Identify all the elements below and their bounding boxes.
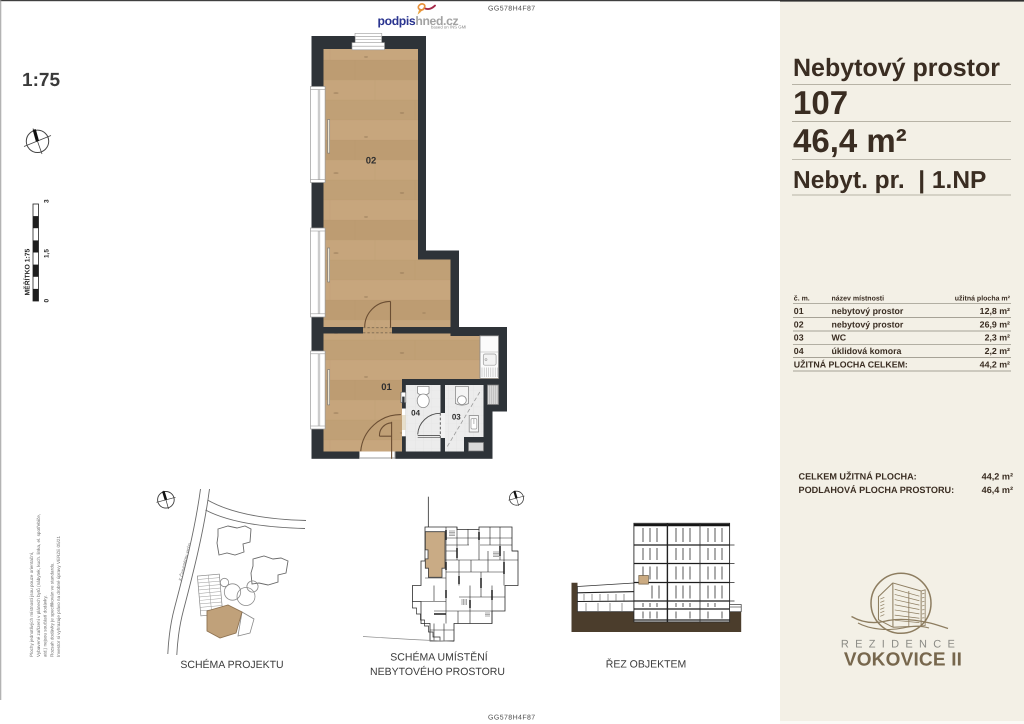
svg-text:26,9 m²: 26,9 m² (980, 319, 1010, 329)
svg-text:1:75: 1:75 (22, 70, 60, 91)
svg-text:č. m.: č. m. (794, 295, 810, 303)
svg-text:03: 03 (794, 333, 804, 343)
svg-text:SCHÉMA PROJEKTU: SCHÉMA PROJEKTU (180, 658, 283, 671)
svg-text:UŽITNÁ PLOCHA CELKEM:: UŽITNÁ PLOCHA CELKEM: (794, 360, 908, 370)
svg-text:01: 01 (381, 382, 392, 393)
svg-text:03: 03 (452, 413, 461, 422)
svg-text:04: 04 (411, 409, 420, 418)
svg-text:Nebyt. pr. | 1.NP: Nebyt. pr. | 1.NP (793, 167, 986, 194)
svg-text:44,2 m²: 44,2 m² (980, 360, 1010, 370)
svg-text:GG578H4F87: GG578H4F87 (488, 715, 536, 722)
svg-text:based on INS GMI: based on INS GMI (431, 25, 466, 30)
svg-text:WC: WC (832, 333, 847, 343)
svg-text:02: 02 (366, 156, 377, 167)
svg-text:02: 02 (794, 319, 804, 329)
svg-text:PODLAHOVÁ PLOCHA PROSTORU:: PODLAHOVÁ PLOCHA PROSTORU: (799, 484, 955, 495)
svg-text:Nebytový prostor: Nebytový prostor (793, 54, 1000, 82)
svg-text:2,3 m²: 2,3 m² (985, 333, 1010, 343)
svg-text:NEBYTOVÉHO PROSTORU: NEBYTOVÉHO PROSTORU (370, 665, 505, 678)
svg-text:CELKEM UŽITNÁ PLOCHA:: CELKEM UŽITNÁ PLOCHA: (799, 470, 917, 481)
svg-text:01: 01 (794, 306, 804, 316)
svg-text:Vybavené zařízení v plánech by: Vybavené zařízení v plánech bytů (nábyte… (36, 514, 41, 657)
svg-text:název místnosti: název místnosti (832, 295, 885, 303)
svg-text:MĚŘÍTKO 1:75: MĚŘÍTKO 1:75 (23, 248, 32, 295)
svg-text:nebytový prostor: nebytový prostor (832, 319, 904, 329)
svg-text:úklidová komora: úklidová komora (832, 346, 902, 356)
svg-text:2,2 m²: 2,2 m² (985, 346, 1010, 356)
svg-text:GG578H4F87: GG578H4F87 (488, 6, 536, 13)
svg-text:107: 107 (793, 84, 848, 121)
svg-text:atd.) nejsou součástí dodávky.: atd.) nejsou součástí dodávky. (43, 595, 48, 657)
svg-text:Rozsah dodávky je specifikován: Rozsah dodávky je specifikován ve standa… (49, 563, 54, 657)
svg-text:3: 3 (44, 199, 51, 203)
svg-text:44,2 m²: 44,2 m² (982, 471, 1013, 481)
svg-text:ŘEZ OBJEKTEM: ŘEZ OBJEKTEM (606, 658, 687, 671)
svg-text:Investor si vyhrazuje právo na: Investor si vyhrazuje právo na drobné úp… (56, 536, 61, 657)
svg-text:Plochy jednotlivých místností: Plochy jednotlivých místností jsou pouze… (29, 552, 34, 657)
svg-text:užitná plocha m²: užitná plocha m² (955, 295, 1011, 303)
svg-text:nebytový prostor: nebytový prostor (832, 306, 904, 316)
svg-text:VOKOVICE II: VOKOVICE II (844, 649, 962, 670)
svg-text:0: 0 (44, 299, 51, 303)
svg-text:04: 04 (794, 346, 804, 356)
svg-text:K Červenému vrchu: K Červenému vrchu (178, 542, 192, 581)
svg-text:46,4 m²: 46,4 m² (793, 122, 907, 159)
svg-text:46,4 m²: 46,4 m² (982, 485, 1013, 495)
svg-text:SCHÉMA UMÍSTĚNÍ: SCHÉMA UMÍSTĚNÍ (390, 651, 488, 664)
svg-text:1,5: 1,5 (44, 249, 51, 258)
svg-text:12,8 m²: 12,8 m² (980, 306, 1010, 316)
